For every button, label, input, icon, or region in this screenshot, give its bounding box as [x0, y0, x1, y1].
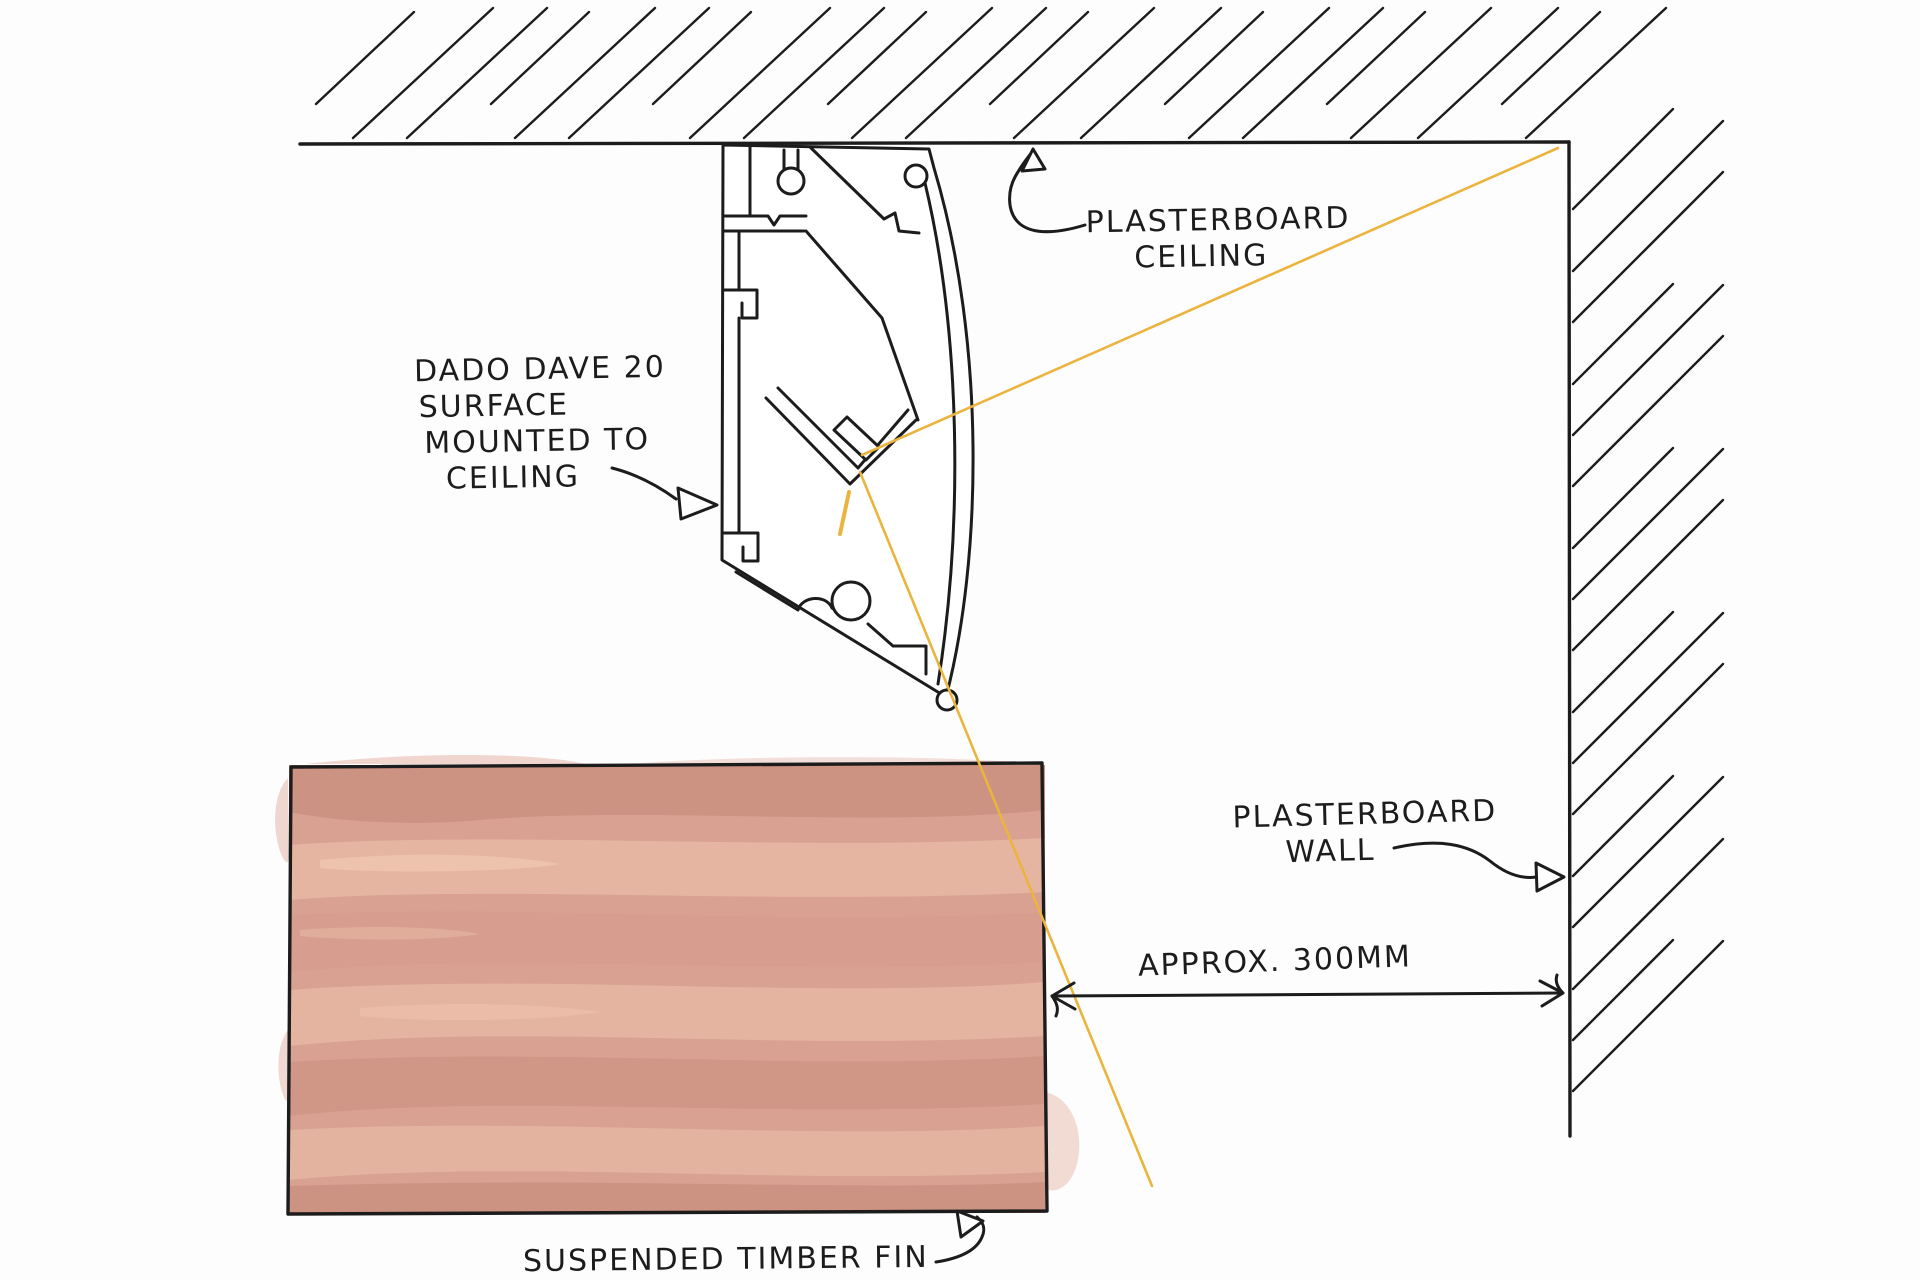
- fin-paint-bleed-left: [275, 778, 289, 862]
- profile-screw-port: [832, 582, 870, 620]
- dimension-arrow-right: [1540, 975, 1563, 1006]
- profile-label-line4: CEILING: [446, 458, 668, 498]
- fin-paint-bleed-top: [305, 755, 585, 764]
- ceiling-label-line1: PLASTERBOARD: [1085, 201, 1350, 242]
- dimension: [1052, 975, 1563, 1016]
- wall-hatch-pattern: [1573, 109, 1723, 1091]
- wall-line: [1569, 142, 1570, 1136]
- profile-label-line2: SURFACE: [418, 386, 666, 426]
- profile-knob-left: [778, 168, 804, 194]
- profile-arrow-head-icon: [678, 488, 717, 519]
- profile-label-line3: MOUNTED TO: [424, 422, 667, 462]
- fin-label: SUSPENDED TIMBER FIN: [523, 1240, 929, 1280]
- profile-label: DADO DAVE 20 SURFACE MOUNTED TO CEILING: [414, 350, 668, 498]
- ceiling-hatch-pattern: [316, 8, 1666, 138]
- sketch-canvas: [0, 0, 1920, 1280]
- fin-texture: [289, 765, 1045, 1213]
- profile-label-line1: DADO DAVE 20: [414, 350, 666, 390]
- ceiling-label: PLASTERBOARD CEILING: [1085, 201, 1351, 278]
- fin-paint-bleed-right: [1046, 1092, 1079, 1190]
- ceiling-line: [300, 142, 1569, 144]
- sketch-page: DADO DAVE 20 SURFACE MOUNTED TO CEILING …: [0, 0, 1920, 1280]
- ceiling-label-arrow: [1010, 151, 1085, 232]
- dimension-line: [1052, 993, 1562, 996]
- fin-arrow-head-icon: [957, 1211, 983, 1237]
- wall-label-line2: WALL: [1285, 830, 1499, 872]
- wall-label: PLASTERBOARD WALL: [1232, 794, 1499, 873]
- timber-fin: [275, 755, 1079, 1214]
- dado-profile: [722, 145, 973, 710]
- wall-arrow-head-icon: [1536, 863, 1564, 891]
- ceiling-label-line2: CEILING: [1134, 237, 1351, 277]
- wall-label-line1: PLASTERBOARD: [1232, 794, 1498, 837]
- light-ray-to-ceiling-corner: [862, 148, 1558, 455]
